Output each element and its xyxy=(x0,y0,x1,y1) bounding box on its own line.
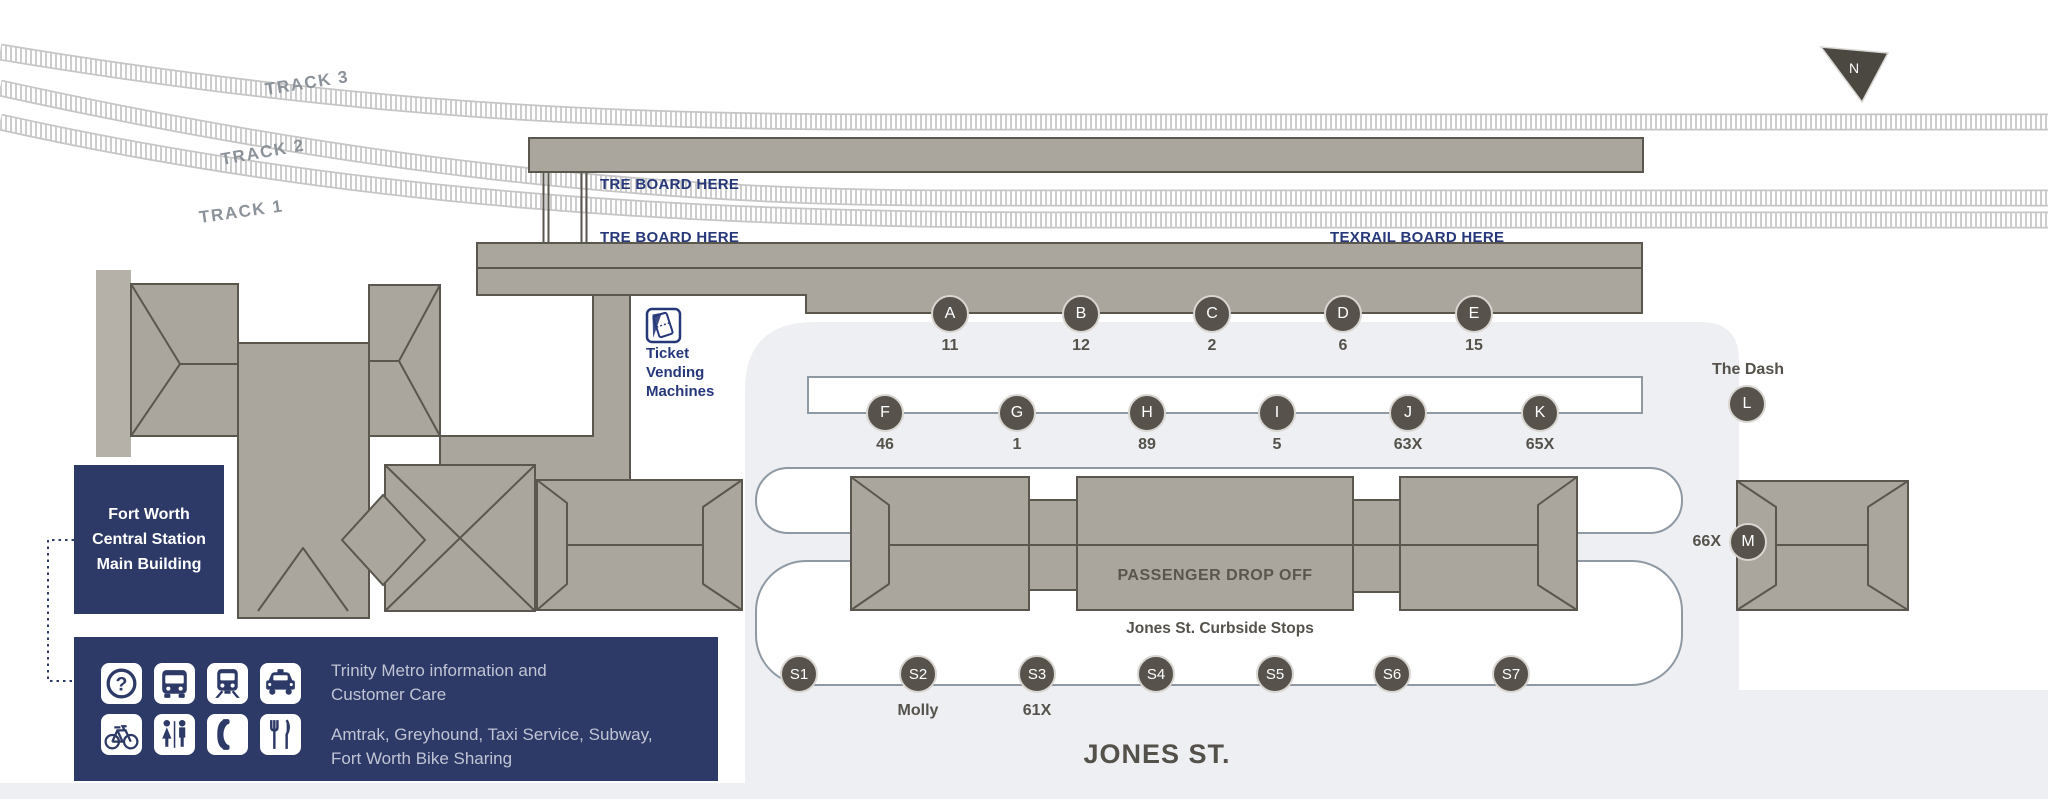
north-rail-platform xyxy=(529,138,1643,172)
taxi-icon xyxy=(260,663,301,704)
stop-circle-s3: S3 xyxy=(1018,655,1056,693)
passenger-drop-off-label: PASSENGER DROP OFF xyxy=(1077,567,1353,585)
stop-circle-s7: S7 xyxy=(1492,655,1530,693)
bike-icon xyxy=(101,714,142,755)
bay-route-k: 65X xyxy=(1500,436,1580,454)
stop-circle-s1: S1 xyxy=(780,655,818,693)
north-label: N xyxy=(1849,60,1859,76)
bay-route-d: 6 xyxy=(1303,337,1383,355)
jones-street-label: JONES ST. xyxy=(1007,739,1307,770)
bay-circle-f: F xyxy=(866,394,904,432)
bus-canopy xyxy=(851,477,1577,610)
bay-circle-m: M xyxy=(1729,523,1767,561)
ticket-vending-label: Ticket Vending Machines xyxy=(646,344,714,401)
tre-board-upper-label: TRE BOARD HERE xyxy=(600,176,739,193)
texrail-board-label: TEXRAIL BOARD HERE xyxy=(1330,229,1504,246)
legend-row-1: Trinity Metro information and Customer C… xyxy=(331,659,547,707)
bay-route-j: 63X xyxy=(1368,436,1448,454)
bay-circle-e: E xyxy=(1455,295,1493,333)
bay-route-f: 46 xyxy=(845,436,925,454)
bay-route-i: 5 xyxy=(1237,436,1317,454)
svg-text:?: ? xyxy=(116,674,128,696)
bay-route-h: 89 xyxy=(1107,436,1187,454)
the-dash-label: The Dash xyxy=(1688,361,1808,379)
bay-route-e: 15 xyxy=(1434,337,1514,355)
station-map: TRACK 3 TRACK 2 TRACK 1 TRE BOARD HERE T… xyxy=(0,0,2048,799)
bay-route-g: 1 xyxy=(977,436,1057,454)
bay-circle-i: I xyxy=(1258,394,1296,432)
stop-route-61x: 61X xyxy=(997,702,1077,720)
north-arrow-icon: N xyxy=(1821,47,1888,102)
bay-circle-h: H xyxy=(1128,394,1166,432)
stop-circle-s2: S2 xyxy=(899,655,937,693)
bay-circle-g: G xyxy=(998,394,1036,432)
tre-board-lower-label: TRE BOARD HERE xyxy=(600,229,739,246)
bus-icon xyxy=(154,663,195,704)
info-icon: ? xyxy=(101,663,142,704)
label-connector-line xyxy=(48,540,74,681)
phone-icon xyxy=(207,714,248,755)
stop-circle-s5: S5 xyxy=(1256,655,1294,693)
route-66x-label: 66X xyxy=(1655,533,1721,551)
legend-row-2: Amtrak, Greyhound, Taxi Service, Subway,… xyxy=(331,723,653,771)
bay-circle-a: A xyxy=(931,295,969,333)
bay-circle-b: B xyxy=(1062,295,1100,333)
dining-icon xyxy=(260,714,301,755)
bay-circle-j: J xyxy=(1389,394,1427,432)
track-1-label: TRACK 1 xyxy=(198,196,285,227)
bus-island xyxy=(808,377,1642,413)
restroom-icon xyxy=(154,714,195,755)
ticket-vending-icon xyxy=(647,309,680,342)
bay-circle-k: K xyxy=(1521,394,1559,432)
curbside-stops-title: Jones St. Curbside Stops xyxy=(1060,620,1380,638)
train-icon xyxy=(207,663,248,704)
stop-circle-s4: S4 xyxy=(1137,655,1175,693)
main-building-label: Fort Worth Central Station Main Building xyxy=(74,465,224,614)
stop-circle-s6: S6 xyxy=(1373,655,1411,693)
bay-circle-d: D xyxy=(1324,295,1362,333)
bay-circle-l: L xyxy=(1728,385,1766,423)
legend-box: ? xyxy=(74,637,718,781)
bay-route-a: 11 xyxy=(910,337,990,355)
bay-route-b: 12 xyxy=(1041,337,1121,355)
stop-route-molly: Molly xyxy=(878,702,958,720)
bay-circle-c: C xyxy=(1193,295,1231,333)
bay-route-c: 2 xyxy=(1172,337,1252,355)
